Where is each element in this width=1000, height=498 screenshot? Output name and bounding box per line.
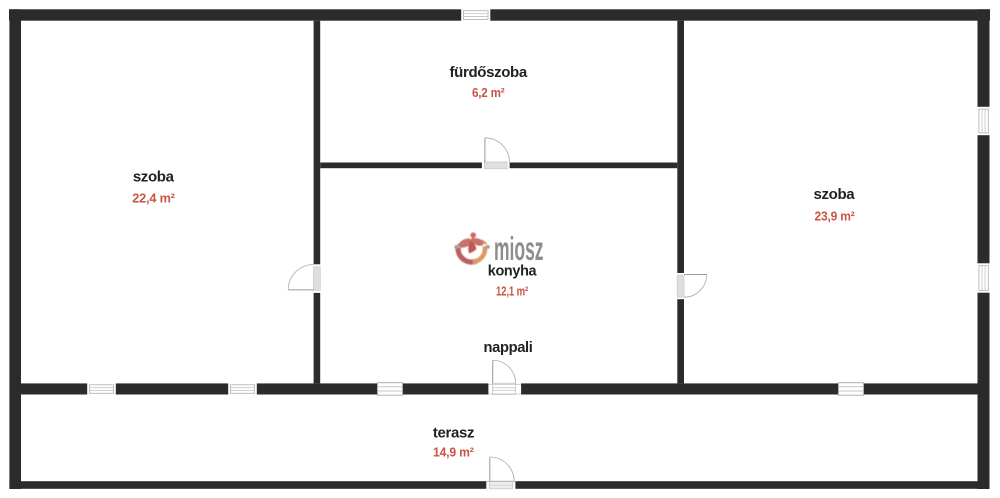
svg-text:miosz: miosz bbox=[494, 230, 544, 267]
svg-text:22,4 m²: 22,4 m² bbox=[132, 191, 175, 205]
svg-text:terasz: terasz bbox=[433, 424, 474, 441]
svg-text:6,2 m²: 6,2 m² bbox=[472, 86, 505, 100]
svg-text:12,1 m²: 12,1 m² bbox=[496, 285, 528, 299]
svg-text:14,9 m²: 14,9 m² bbox=[433, 446, 474, 460]
svg-text:szoba: szoba bbox=[133, 169, 175, 186]
svg-text:szoba: szoba bbox=[814, 186, 856, 203]
svg-text:fürdőszoba: fürdőszoba bbox=[450, 64, 528, 81]
svg-text:23,9 m²: 23,9 m² bbox=[815, 209, 855, 223]
svg-text:nappali: nappali bbox=[484, 339, 533, 356]
